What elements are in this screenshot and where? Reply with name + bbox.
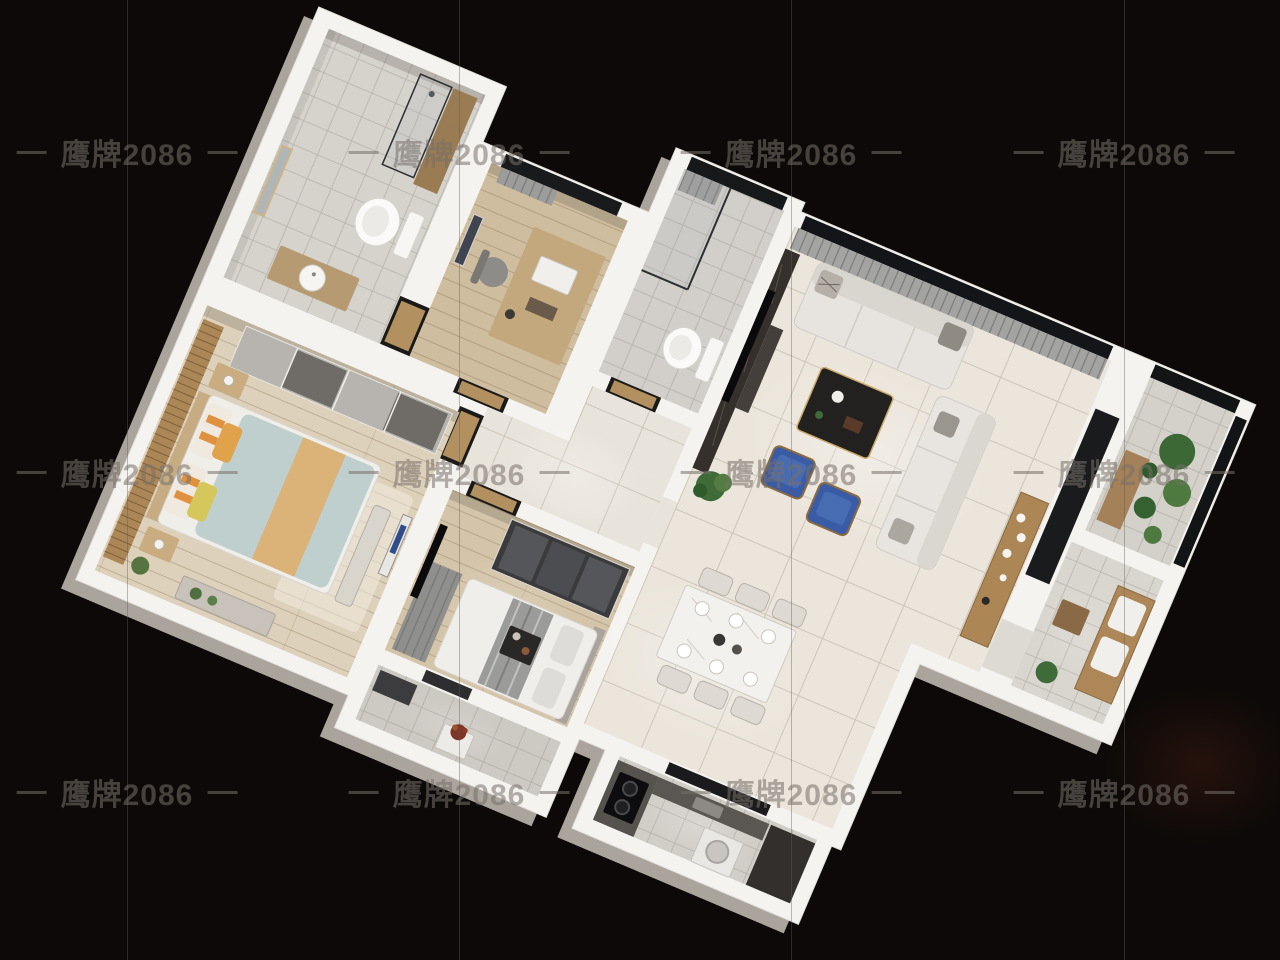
floorplan-render [0, 0, 1280, 960]
screenshot-canvas: 鹰牌2086鹰牌2086鹰牌2086鹰牌2086鹰牌2086鹰牌2086鹰牌20… [0, 0, 1280, 960]
apartment-plan [47, 0, 1259, 960]
